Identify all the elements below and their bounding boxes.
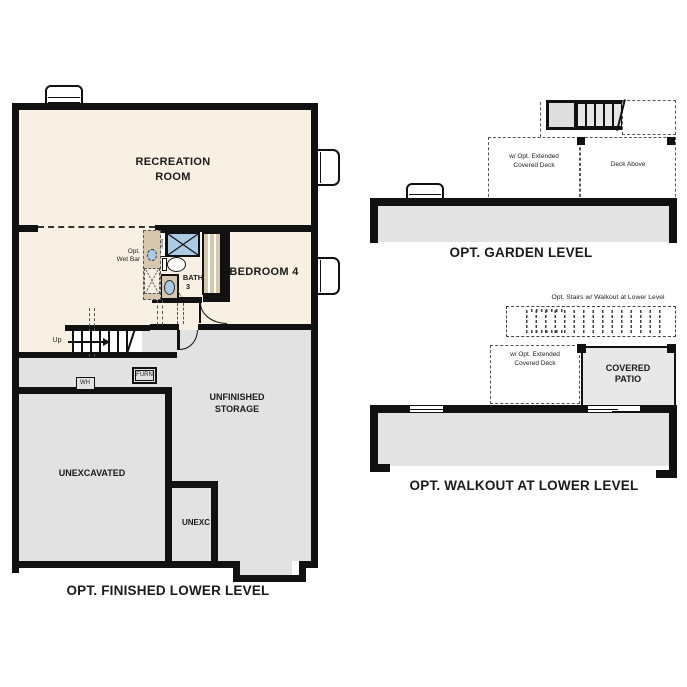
walkout-title: OPT. WALKOUT AT LOWER LEVEL (389, 478, 659, 493)
covered-patio-label: COVERED PATIO (592, 363, 664, 385)
wet-bar-label: Opt. Wet Bar (102, 248, 140, 264)
storage-bump-floor (240, 561, 292, 575)
wall (311, 103, 318, 568)
dashed-line (162, 300, 163, 325)
toilet-bowl (167, 257, 186, 272)
up-label: Up (48, 337, 66, 344)
sliding-door-panel-line (588, 409, 618, 410)
wet-bar-sink (147, 249, 157, 261)
unexcavated-label: UNEXCAVATED (47, 468, 137, 478)
walkout-house-band (378, 413, 669, 466)
floorplan-sheet: Seat BATH 3 Opt. Wet Bar Up WH FURN (0, 0, 687, 687)
dashed-opening (38, 226, 155, 228)
deck-stair-landing (546, 100, 577, 130)
bedroom4-label: BEDROOM 4 (219, 266, 309, 278)
shower-x-icon (168, 234, 198, 255)
wall (12, 103, 318, 110)
unfinished-storage-label: UNFINISHED STORAGE (191, 392, 283, 415)
wall (370, 198, 378, 243)
sliding-door-panel-line (612, 411, 640, 412)
up-arrow (68, 341, 104, 343)
deck-post (667, 137, 675, 145)
wall (378, 464, 390, 472)
wall (150, 324, 179, 330)
fridge-x-icon (146, 270, 158, 292)
dashed-line (540, 102, 541, 137)
dashed-line (183, 303, 184, 324)
wall (233, 575, 306, 582)
deck-above-upper-outline (622, 100, 676, 135)
unexc-label: UNEXC (175, 518, 217, 527)
walkout-stair-arrows (531, 309, 565, 312)
garden-deck-above-outline (580, 137, 676, 202)
wall (19, 352, 177, 358)
wall (669, 198, 677, 243)
garden-deck-above-label: Deck Above (598, 161, 658, 168)
dashed-line (157, 300, 158, 325)
recreation-room-label: RECREATION ROOM (103, 155, 243, 184)
walkout-sliding-door (588, 405, 640, 413)
finished-lower-title: OPT. FINISHED LOWER LEVEL (33, 583, 303, 598)
garden-extended-deck-label: w/ Opt. Extended Covered Deck (490, 153, 578, 170)
wall (656, 470, 669, 478)
garden-level-title: OPT. GARDEN LEVEL (421, 245, 621, 260)
patio-post (577, 344, 586, 353)
garden-house-band (378, 206, 669, 242)
wh-label: WH (77, 380, 93, 386)
wall (669, 405, 677, 478)
dashed-line (177, 303, 178, 324)
vanity-sink (164, 280, 175, 295)
up-arrow-head-icon (103, 338, 110, 346)
furnace: FURN (132, 367, 157, 384)
closet-shelving (202, 232, 222, 295)
wall (12, 561, 240, 568)
wall (222, 232, 230, 297)
wall (12, 103, 19, 573)
patio-post (667, 344, 676, 353)
walkout-extended-deck-label: w/ Opt. Extended Covered Deck (494, 351, 576, 368)
walkout-stairs-label: Opt. Stairs w/ Walkout at Lower Level (528, 294, 687, 301)
walkout-window-mullion (410, 409, 443, 410)
water-heater: WH (76, 377, 95, 390)
walkout-stair-arrows (531, 330, 565, 333)
wall (370, 198, 677, 206)
furn-label: FURN (134, 372, 155, 378)
wall (198, 324, 311, 330)
walkout-window (410, 405, 443, 413)
wall (370, 405, 378, 472)
wall (19, 225, 38, 232)
wall (165, 387, 172, 568)
deck-stairs (576, 100, 622, 130)
wall (155, 225, 311, 232)
deck-post (577, 137, 585, 145)
